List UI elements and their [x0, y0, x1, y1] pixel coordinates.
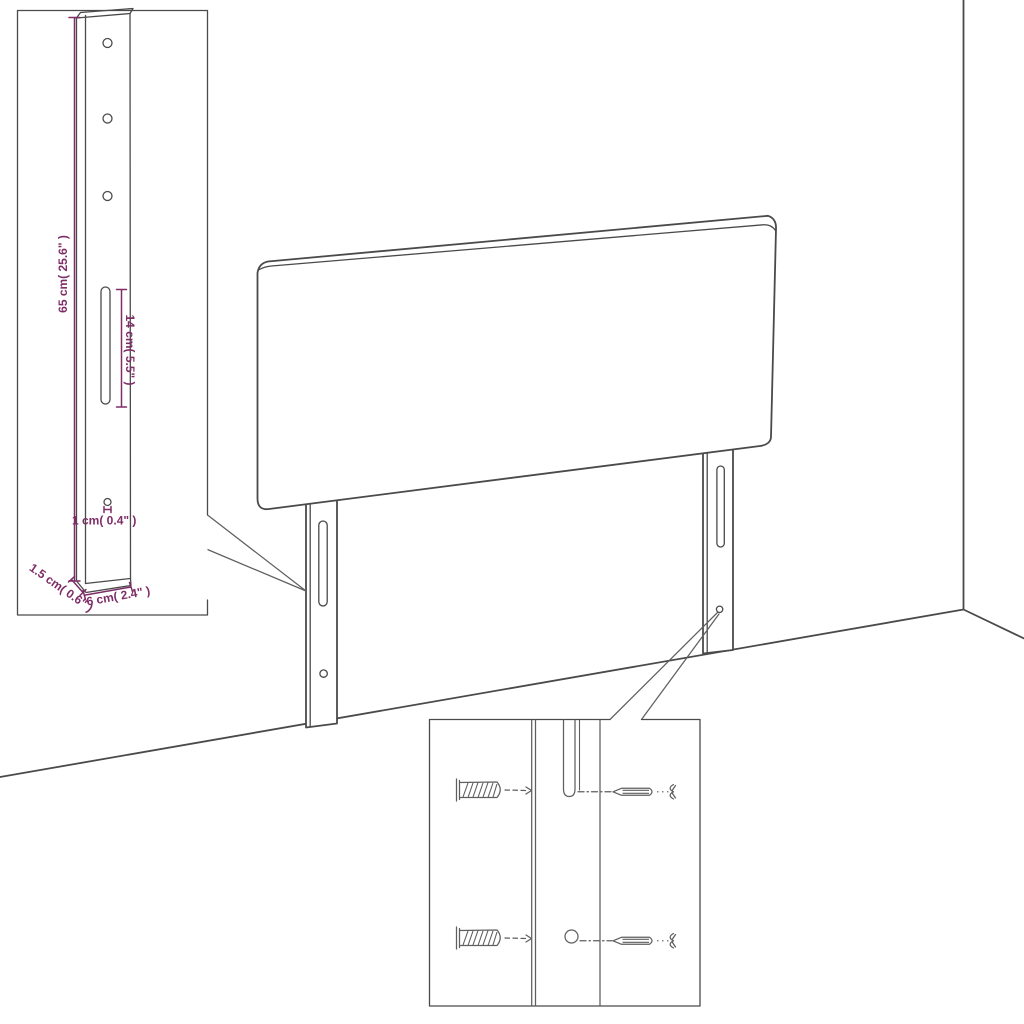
floor-line-right [964, 610, 1024, 639]
diagram-canvas: 65 cm( 25.6" ) 14 cm( 5.5" ) 1 cm( 0.4" … [0, 0, 1024, 1024]
bracket-right-edge [130, 14, 131, 579]
wall-plug-leader-dash [505, 790, 527, 791]
hardware-inset-background [430, 720, 701, 1007]
leader-line [208, 550, 307, 592]
wall-plug-leader-dash [505, 938, 527, 939]
dim-height-label: 65 cm( 25.6" ) [56, 235, 70, 313]
headboard-outline [258, 216, 777, 509]
hardware-detail-inset [430, 720, 701, 1007]
leader-line [208, 515, 307, 591]
leader-line [610, 613, 718, 720]
leader-line [642, 614, 720, 720]
leg-inset-leader-lines [208, 515, 307, 591]
left-mounting-leg [306, 496, 337, 728]
dim-hole-label: 1 cm( 0.4" ) [72, 514, 136, 528]
headboard-diagram: 65 cm( 25.6" ) 14 cm( 5.5" ) 1 cm( 0.4" … [0, 0, 1024, 1024]
headboard-panel [258, 216, 777, 509]
dim-slot-label: 14 cm( 5.5" ) [123, 314, 137, 385]
leg-detail-inset: 65 cm( 25.6" ) 14 cm( 5.5" ) 1 cm( 0.4" … [18, 9, 208, 616]
